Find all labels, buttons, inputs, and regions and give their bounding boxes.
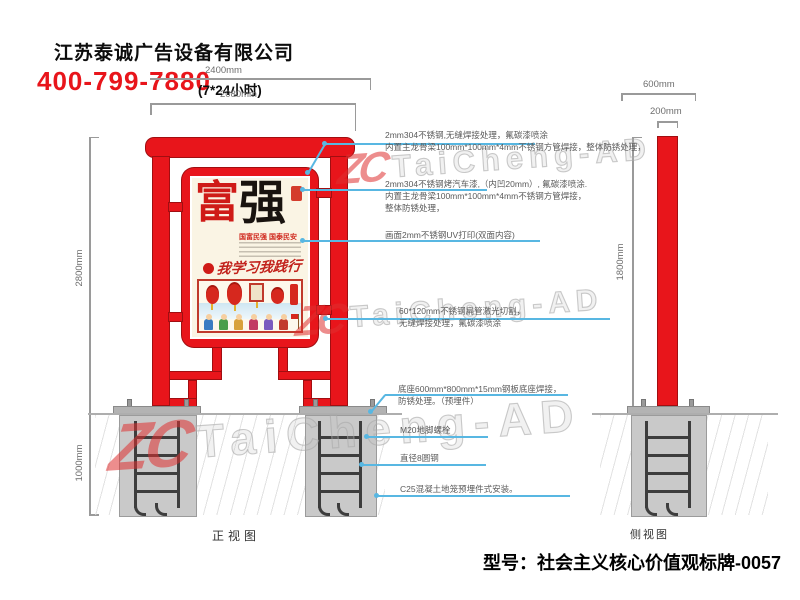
leader-dot bbox=[300, 187, 305, 192]
poster-char-fu: 富 bbox=[195, 181, 239, 225]
side-column bbox=[657, 136, 678, 406]
company-name: 江苏泰诚广告设备有限公司 bbox=[54, 38, 294, 65]
lantern-tassel bbox=[234, 305, 236, 311]
dim-tick bbox=[695, 93, 697, 101]
leader-line bbox=[377, 495, 570, 497]
cartoon-person bbox=[219, 319, 228, 330]
front-view-label: 正视图 bbox=[212, 527, 260, 544]
dim-label-1800: 1800mm bbox=[615, 239, 625, 285]
leader-dot bbox=[300, 238, 305, 243]
lattice-bar bbox=[316, 305, 332, 315]
sign-right-post bbox=[330, 156, 348, 406]
annotation-round-steel: 直径8圆钢 bbox=[400, 452, 439, 464]
lattice-bar bbox=[188, 380, 197, 399]
palace-lantern bbox=[249, 283, 264, 302]
rebar-cage bbox=[645, 421, 691, 508]
leader-dot bbox=[364, 434, 369, 439]
lantern bbox=[227, 284, 242, 305]
lantern-tassel bbox=[211, 304, 213, 310]
dim-label-200: 200mm bbox=[650, 106, 682, 117]
dim-label-600: 600mm bbox=[643, 79, 675, 90]
lantern bbox=[206, 287, 219, 304]
leader-line bbox=[362, 464, 486, 466]
cartoon-person bbox=[234, 319, 243, 330]
banner bbox=[290, 284, 298, 305]
poster-subtitle: 国富民强 国泰民安 bbox=[239, 232, 297, 242]
annotation-flat-tube: 60*120mm不锈钢扁管激光切割， 无缝焊接处理，氟碳漆喷涂 bbox=[399, 305, 525, 329]
sign-left-post bbox=[152, 156, 170, 406]
dim-label-1000: 1000mm bbox=[74, 440, 84, 486]
lantern bbox=[271, 289, 284, 304]
leader-line bbox=[367, 436, 488, 438]
dim-line-1800 bbox=[632, 137, 634, 413]
dim-tick bbox=[677, 121, 679, 128]
lattice-bar bbox=[278, 347, 288, 373]
annotation-panel-material: 2mm304不锈钢烤汽车漆,（内凹20mm）, 氟碳漆喷涂. 内置主龙骨梁100… bbox=[385, 178, 587, 214]
lattice-bar bbox=[212, 347, 222, 373]
dim-line-2080 bbox=[150, 103, 356, 105]
dim-line-1000 bbox=[89, 415, 91, 515]
red-flag-icon bbox=[291, 314, 298, 319]
poster-illustration bbox=[197, 279, 303, 333]
lattice-bar bbox=[169, 371, 222, 380]
leader-dot bbox=[322, 141, 327, 146]
dim-line-600 bbox=[621, 93, 696, 95]
leader-dot bbox=[359, 462, 364, 467]
dim-tick bbox=[150, 103, 152, 115]
annotation-base-plate: 底座600mm*800mm*15mm钢板底座焊接， 防锈处理。（预埋件） bbox=[398, 383, 561, 407]
phone-number: 400-799-7880 bbox=[37, 66, 211, 97]
leader-dot bbox=[305, 170, 310, 175]
lantern-tassel bbox=[256, 302, 258, 308]
poster-char-qiang: 强 bbox=[239, 179, 286, 226]
lattice-bar bbox=[278, 371, 331, 380]
dim-tick bbox=[657, 121, 659, 128]
dim-line-200 bbox=[657, 121, 678, 123]
dim-label-2080: 2080mm bbox=[220, 89, 257, 100]
rebar-cage bbox=[318, 421, 362, 508]
dim-label-2400: 2400mm bbox=[205, 65, 242, 76]
leader-dot bbox=[368, 409, 373, 414]
drawing-sheet: 江苏泰诚广告设备有限公司 400-799-7880 (7*24小时) 2400m… bbox=[0, 0, 800, 600]
lattice-bar bbox=[168, 312, 183, 322]
cartoon-person bbox=[264, 319, 273, 330]
dim-tick bbox=[89, 137, 99, 139]
cartoon-person bbox=[249, 319, 258, 330]
dim-line-2800 bbox=[89, 137, 91, 414]
cartoon-person bbox=[279, 319, 288, 330]
annotation-frame-material: 2mm304不锈钢,无缝焊接处理，氟碳漆喷涂 内置主龙骨梁100mm*100mm… bbox=[385, 129, 646, 153]
rebar-cage bbox=[134, 421, 180, 508]
leader-dot bbox=[374, 493, 379, 498]
cartoon-person bbox=[204, 319, 213, 330]
flag-pole bbox=[298, 314, 299, 329]
lattice-bar bbox=[303, 380, 312, 399]
party-emblem-icon bbox=[203, 263, 214, 274]
annotation-concrete: C25混凝土地笼预埋件式安装。 bbox=[400, 483, 518, 495]
leader-dot bbox=[323, 316, 328, 321]
dim-tick bbox=[370, 78, 372, 90]
side-view-label: 侧视图 bbox=[630, 526, 669, 542]
poster-calligraphy: 我学习我践行 bbox=[216, 256, 302, 279]
annotation-anchor-bolt: M20地脚螺栓 bbox=[400, 424, 451, 436]
lattice-bar bbox=[168, 202, 183, 212]
dim-tick bbox=[355, 103, 357, 131]
model-label: 型号：社会主义核心价值观标牌-0057 bbox=[483, 549, 781, 575]
annotation-uv-print: 画面2mm不锈钢UV打印(双面内容) bbox=[385, 229, 515, 241]
poster-artwork: 富 强 国富民强 国泰民安 我学习我践行 bbox=[190, 176, 310, 339]
dim-label-2800: 2800mm bbox=[74, 245, 84, 291]
dim-line-2400 bbox=[150, 78, 371, 80]
dim-tick bbox=[621, 93, 623, 101]
